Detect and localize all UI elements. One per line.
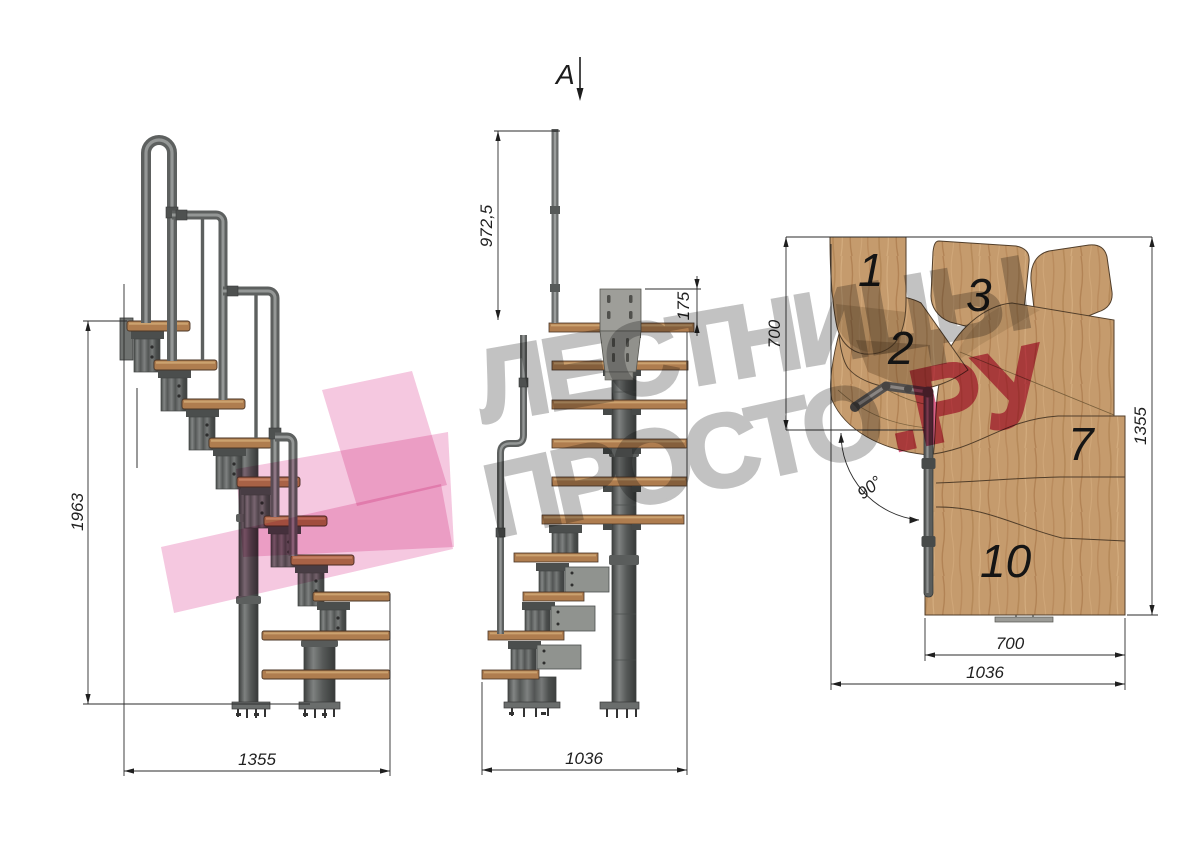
svg-text:1963: 1963 xyxy=(68,493,87,531)
svg-text:1036: 1036 xyxy=(565,749,603,768)
svg-text:10: 10 xyxy=(980,535,1032,587)
svg-text:700: 700 xyxy=(996,634,1025,653)
svg-text:A: A xyxy=(554,59,575,90)
svg-text:1036: 1036 xyxy=(966,663,1004,682)
svg-text:1355: 1355 xyxy=(1131,407,1150,445)
svg-text:7: 7 xyxy=(1068,418,1095,470)
svg-text:972,5: 972,5 xyxy=(477,204,496,247)
svg-text:1355: 1355 xyxy=(238,750,276,769)
